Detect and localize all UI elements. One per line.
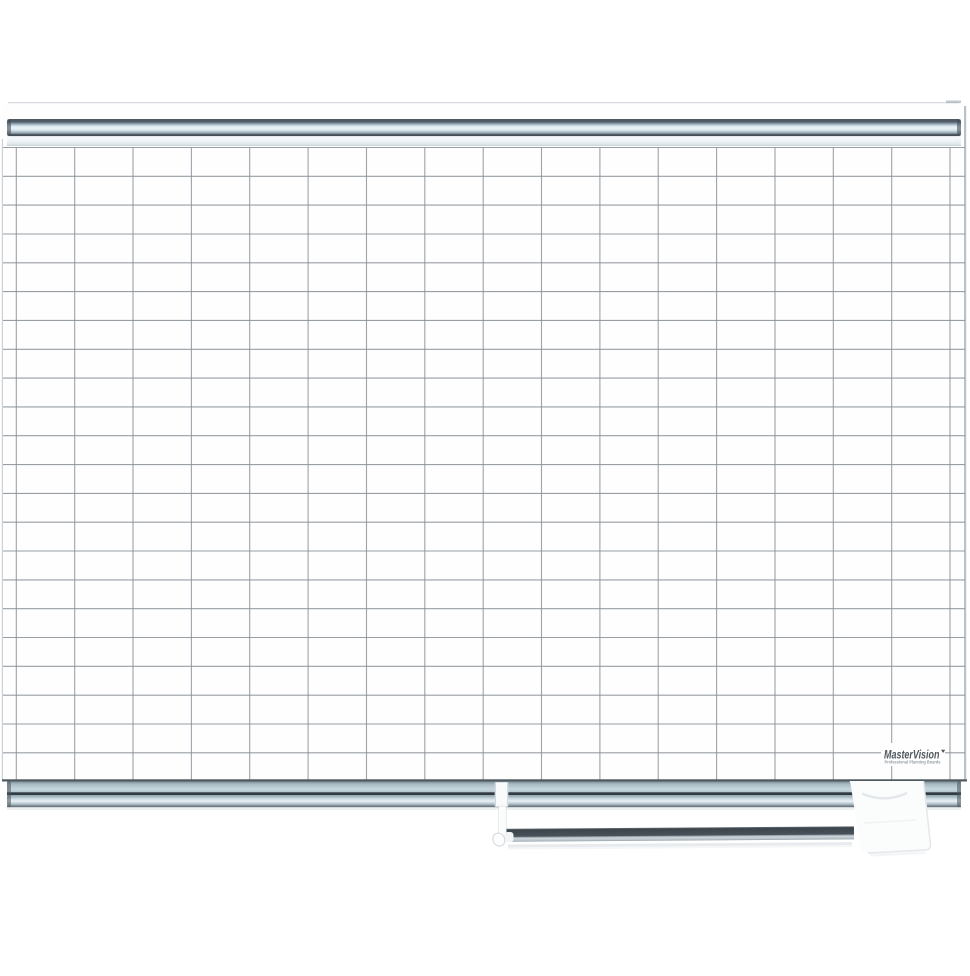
svg-text:Professional Planning Boards: Professional Planning Boards (885, 760, 941, 765)
